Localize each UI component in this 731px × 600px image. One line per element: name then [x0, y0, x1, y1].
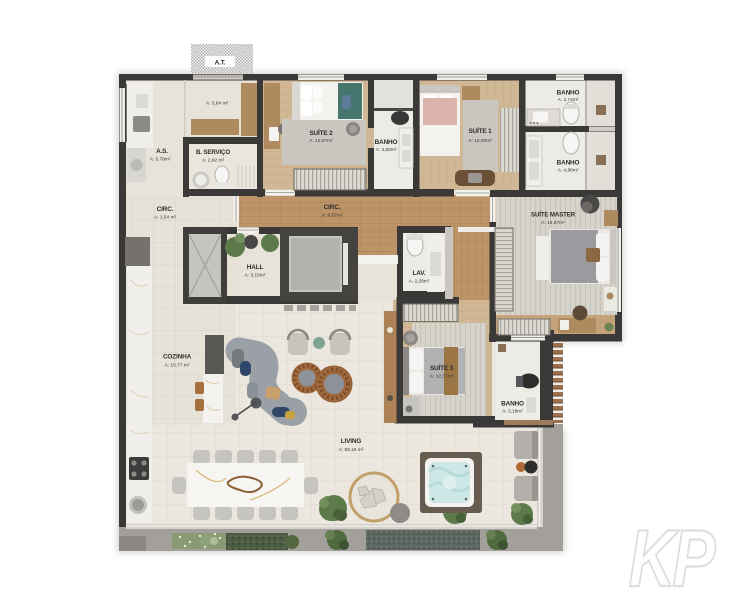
- svg-text:CIRC.: CIRC.: [157, 206, 174, 213]
- svg-text:CIRC.: CIRC.: [324, 204, 341, 211]
- svg-text:COZINHA: COZINHA: [163, 354, 192, 361]
- svg-text:A: 15,97m²: A: 15,97m²: [541, 220, 565, 226]
- svg-text:SUÍTE 2: SUÍTE 2: [309, 128, 333, 137]
- svg-text:A: 2,92 m²: A: 2,92 m²: [202, 158, 225, 164]
- svg-text:BANHO: BANHO: [375, 139, 398, 146]
- svg-text:A: 2,28m²: A: 2,28m²: [409, 279, 430, 285]
- svg-text:A: 3,60m²: A: 3,60m²: [376, 147, 397, 153]
- svg-text:HALL: HALL: [247, 264, 264, 271]
- svg-text:LIVING: LIVING: [341, 438, 362, 445]
- svg-text:A: 5,78m²: A: 5,78m²: [150, 157, 171, 163]
- svg-text:A: 4,86m²: A: 4,86m²: [558, 168, 579, 174]
- svg-text:A: 10,00m²: A: 10,00m²: [468, 138, 492, 144]
- svg-text:A: 9,57m²: A: 9,57m²: [322, 213, 343, 219]
- svg-text:B. SERVIÇO: B. SERVIÇO: [196, 149, 230, 156]
- svg-text:A.T.: A.T.: [215, 60, 226, 67]
- svg-text:A: 59,19 m²: A: 59,19 m²: [339, 447, 364, 453]
- svg-text:BANHO: BANHO: [557, 160, 580, 167]
- svg-text:A: 3,64 m²: A: 3,64 m²: [206, 101, 229, 107]
- svg-text:SUÍTE 3: SUÍTE 3: [430, 363, 454, 372]
- svg-text:LAV.: LAV.: [413, 270, 426, 277]
- svg-text:A: 3,18m²: A: 3,18m²: [502, 409, 523, 415]
- svg-text:A: 15,77 m²: A: 15,77 m²: [165, 363, 190, 369]
- svg-text:BANHO: BANHO: [501, 401, 524, 408]
- svg-text:SUÍTE 1: SUÍTE 1: [468, 126, 492, 135]
- svg-text:A: 3,15m²: A: 3,15m²: [245, 273, 266, 279]
- svg-text:SUÍTE MASTER: SUÍTE MASTER: [531, 210, 576, 219]
- svg-text:A: 2,74m²: A: 2,74m²: [558, 97, 579, 103]
- svg-text:A: 10,07m²: A: 10,07m²: [309, 138, 333, 144]
- svg-text:BANHO: BANHO: [557, 90, 580, 97]
- svg-text:A.S.: A.S.: [156, 148, 168, 155]
- svg-text:A: 1,54 m²: A: 1,54 m²: [154, 215, 177, 221]
- svg-text:KP: KP: [629, 513, 717, 600]
- svg-text:A: 12,37m²: A: 12,37m²: [430, 374, 454, 380]
